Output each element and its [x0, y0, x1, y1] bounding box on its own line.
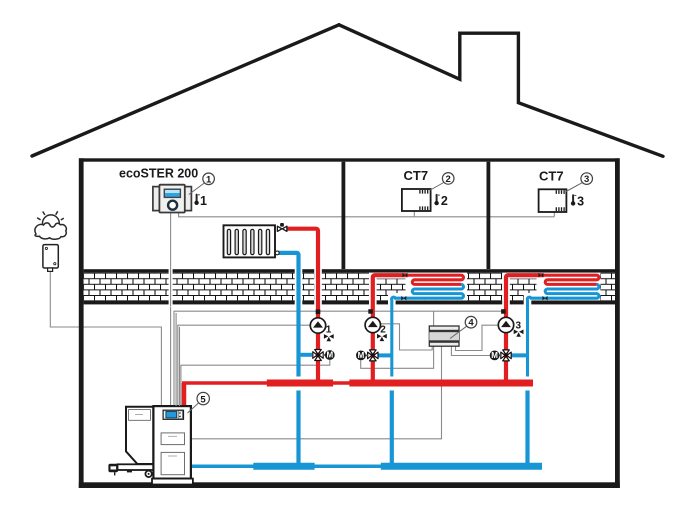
svg-text:M: M [491, 351, 498, 360]
svg-text:5: 5 [200, 394, 206, 405]
svg-text:4: 4 [468, 318, 474, 329]
svg-text:2: 2 [446, 174, 451, 185]
svg-text:1: 1 [200, 194, 207, 208]
svg-text:2: 2 [441, 194, 448, 208]
svg-text:2: 2 [380, 324, 386, 335]
svg-text:3: 3 [516, 321, 522, 332]
svg-text:3: 3 [584, 174, 589, 185]
svg-text:ecoSTER 200: ecoSTER 200 [119, 167, 198, 181]
svg-text:M: M [358, 351, 365, 360]
svg-text:M: M [326, 351, 333, 360]
svg-text:1: 1 [206, 174, 212, 185]
svg-text:3: 3 [577, 195, 584, 209]
svg-text:CT7: CT7 [539, 168, 564, 183]
svg-text:1: 1 [326, 324, 332, 335]
svg-text:CT7: CT7 [404, 168, 429, 183]
